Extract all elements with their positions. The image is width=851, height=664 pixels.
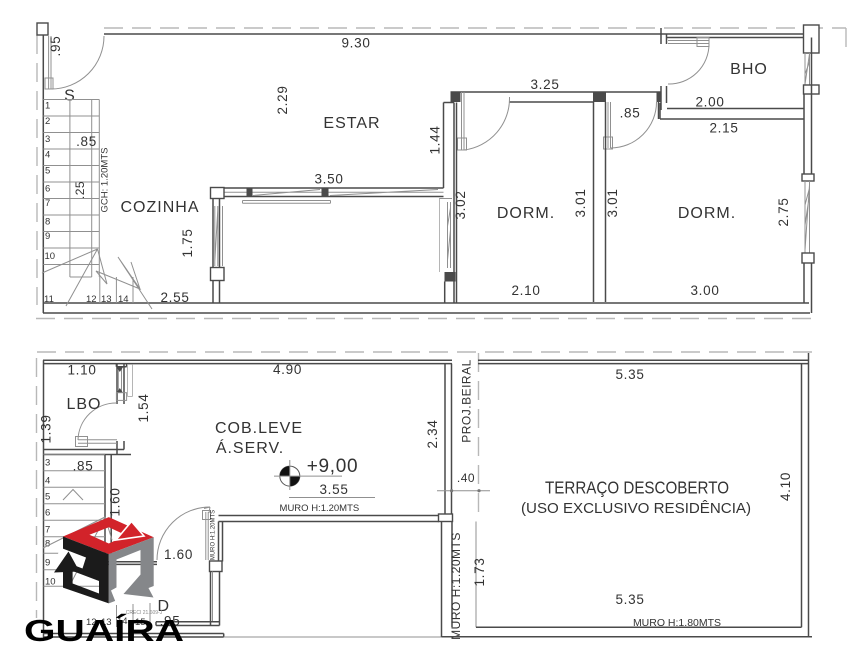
svg-text:DORM.: DORM. [678,205,736,222]
svg-text:2.29: 2.29 [275,85,290,114]
svg-text:COZINHA: COZINHA [121,199,200,216]
svg-text:8: 8 [45,217,50,228]
svg-text:3.25: 3.25 [530,77,559,92]
svg-text:MURO H:1.20MTS: MURO H:1.20MTS [449,532,463,640]
svg-text:.85: .85 [76,134,97,149]
svg-text:7: 7 [45,525,50,536]
svg-text:Á.SERV.: Á.SERV. [216,438,284,457]
svg-text:1.54: 1.54 [136,393,151,422]
svg-text:GUAÍRA: GUAÍRA [24,613,184,648]
svg-text:2.75: 2.75 [776,197,791,226]
svg-text:3.55: 3.55 [319,482,348,497]
svg-text:PROJ.BEIRAL: PROJ.BEIRAL [460,359,474,443]
svg-text:6: 6 [45,508,50,519]
svg-text:1.60: 1.60 [108,487,123,516]
svg-text:3.50: 3.50 [314,172,343,187]
svg-text:ESTAR: ESTAR [323,115,380,132]
svg-text:.85: .85 [620,106,641,121]
svg-text:10: 10 [45,577,56,588]
svg-text:3.02: 3.02 [453,190,468,219]
svg-text:.25: .25 [73,181,87,199]
svg-text:2.10: 2.10 [511,283,540,298]
svg-text:5.35: 5.35 [615,592,644,607]
svg-text:8: 8 [45,539,50,550]
svg-text:+9,00: +9,00 [307,456,359,477]
svg-text:1.73: 1.73 [472,557,487,586]
svg-text:2.55: 2.55 [160,290,189,305]
svg-text:9: 9 [45,231,50,242]
svg-text:MURO H:1.80MTS: MURO H:1.80MTS [633,617,721,629]
svg-text:5: 5 [45,492,50,503]
svg-text:2.00: 2.00 [695,95,724,110]
svg-text:13: 13 [101,294,112,305]
svg-text:MURO H:1.20MTS: MURO H:1.20MTS [211,510,217,560]
svg-text:2.34: 2.34 [425,419,440,448]
svg-text:5.35: 5.35 [615,367,644,382]
svg-text:3.01: 3.01 [573,188,588,217]
svg-text:6: 6 [45,184,50,195]
svg-text:DORM.: DORM. [497,205,555,222]
svg-text:COB.LEVE: COB.LEVE [215,420,303,437]
svg-text:11: 11 [44,294,54,305]
svg-text:4: 4 [45,476,50,487]
svg-text:1.44: 1.44 [428,125,443,154]
svg-text:.40: .40 [457,471,475,485]
svg-text:3: 3 [45,134,50,145]
svg-text:4: 4 [45,150,50,161]
svg-text:14: 14 [118,294,129,305]
svg-text:.85: .85 [73,459,94,474]
svg-text:MURO H:1.20MTS: MURO H:1.20MTS [280,503,360,514]
svg-text:.95: .95 [48,36,63,57]
svg-text:3.00: 3.00 [690,283,719,298]
svg-text:GCH: 1.20MTS: GCH: 1.20MTS [100,148,111,213]
svg-text:4.10: 4.10 [778,472,793,501]
svg-text:BHO: BHO [730,61,768,78]
svg-text:LBO: LBO [66,396,101,413]
svg-text:10: 10 [45,251,56,262]
svg-text:(USO EXCLUSIVO RESIDÊNCIA): (USO EXCLUSIVO RESIDÊNCIA) [521,500,751,517]
svg-text:12: 12 [86,294,97,305]
svg-text:9.30: 9.30 [341,36,370,51]
svg-text:2: 2 [45,116,50,127]
svg-text:4.90: 4.90 [273,362,302,377]
svg-text:1.75: 1.75 [180,228,195,257]
svg-text:2.15: 2.15 [709,121,738,136]
svg-text:7: 7 [45,198,50,209]
svg-text:1.10: 1.10 [67,363,96,378]
svg-text:TERRAÇO DESCOBERTO: TERRAÇO DESCOBERTO [545,478,729,498]
svg-text:1.39: 1.39 [39,414,54,443]
svg-text:5: 5 [45,166,50,177]
svg-text:3.01: 3.01 [605,188,620,217]
svg-text:3: 3 [45,458,50,469]
svg-text:9: 9 [45,558,50,569]
svg-text:1: 1 [45,101,50,112]
svg-text:1.60: 1.60 [164,547,193,562]
